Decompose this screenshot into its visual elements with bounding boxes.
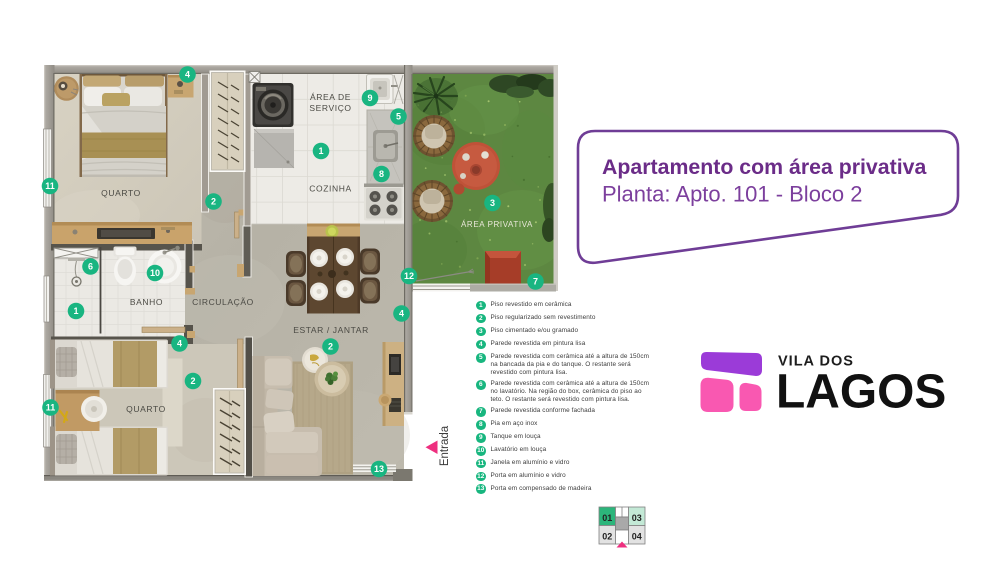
svg-text:4: 4 [399,309,404,319]
svg-text:10: 10 [150,268,160,278]
svg-text:11: 11 [46,403,56,413]
svg-text:COZINHA: COZINHA [309,184,351,194]
svg-text:1: 1 [318,146,323,156]
svg-text:Apartamento com área privativa: Apartamento com área privativa [602,155,926,179]
svg-text:6: 6 [88,262,93,272]
svg-text:02: 02 [602,532,612,542]
svg-text:ESTAR / JANTAR: ESTAR / JANTAR [293,325,369,335]
svg-text:QUARTO: QUARTO [126,404,166,414]
svg-text:Entrada: Entrada [439,425,451,466]
svg-text:12: 12 [404,271,414,281]
svg-text:9: 9 [367,93,372,103]
svg-text:Planta: Apto. 101 - Bloco 2: Planta: Apto. 101 - Bloco 2 [602,182,863,207]
svg-text:7: 7 [533,277,538,287]
svg-text:04: 04 [632,532,642,542]
svg-text:2: 2 [328,342,333,352]
svg-text:03: 03 [632,513,642,523]
svg-text:2: 2 [211,197,216,207]
svg-text:CIRCULAÇÃO: CIRCULAÇÃO [192,297,254,307]
svg-text:BANHO: BANHO [130,297,163,307]
svg-text:ÁREA DE: ÁREA DE [310,92,351,102]
svg-text:ÁREA PRIVATIVA: ÁREA PRIVATIVA [461,220,533,229]
svg-text:2: 2 [190,376,195,386]
svg-text:4: 4 [185,70,190,80]
svg-text:QUARTO: QUARTO [101,188,141,198]
svg-text:SERVIÇO: SERVIÇO [309,103,351,113]
svg-text:8: 8 [379,169,384,179]
svg-text:5: 5 [396,112,401,122]
svg-text:01: 01 [602,513,612,523]
svg-text:4: 4 [177,339,182,349]
svg-text:11: 11 [45,181,55,191]
svg-text:3: 3 [490,198,495,208]
svg-text:13: 13 [374,464,384,474]
svg-text:LAGOS: LAGOS [776,366,946,419]
svg-text:1: 1 [73,306,78,316]
